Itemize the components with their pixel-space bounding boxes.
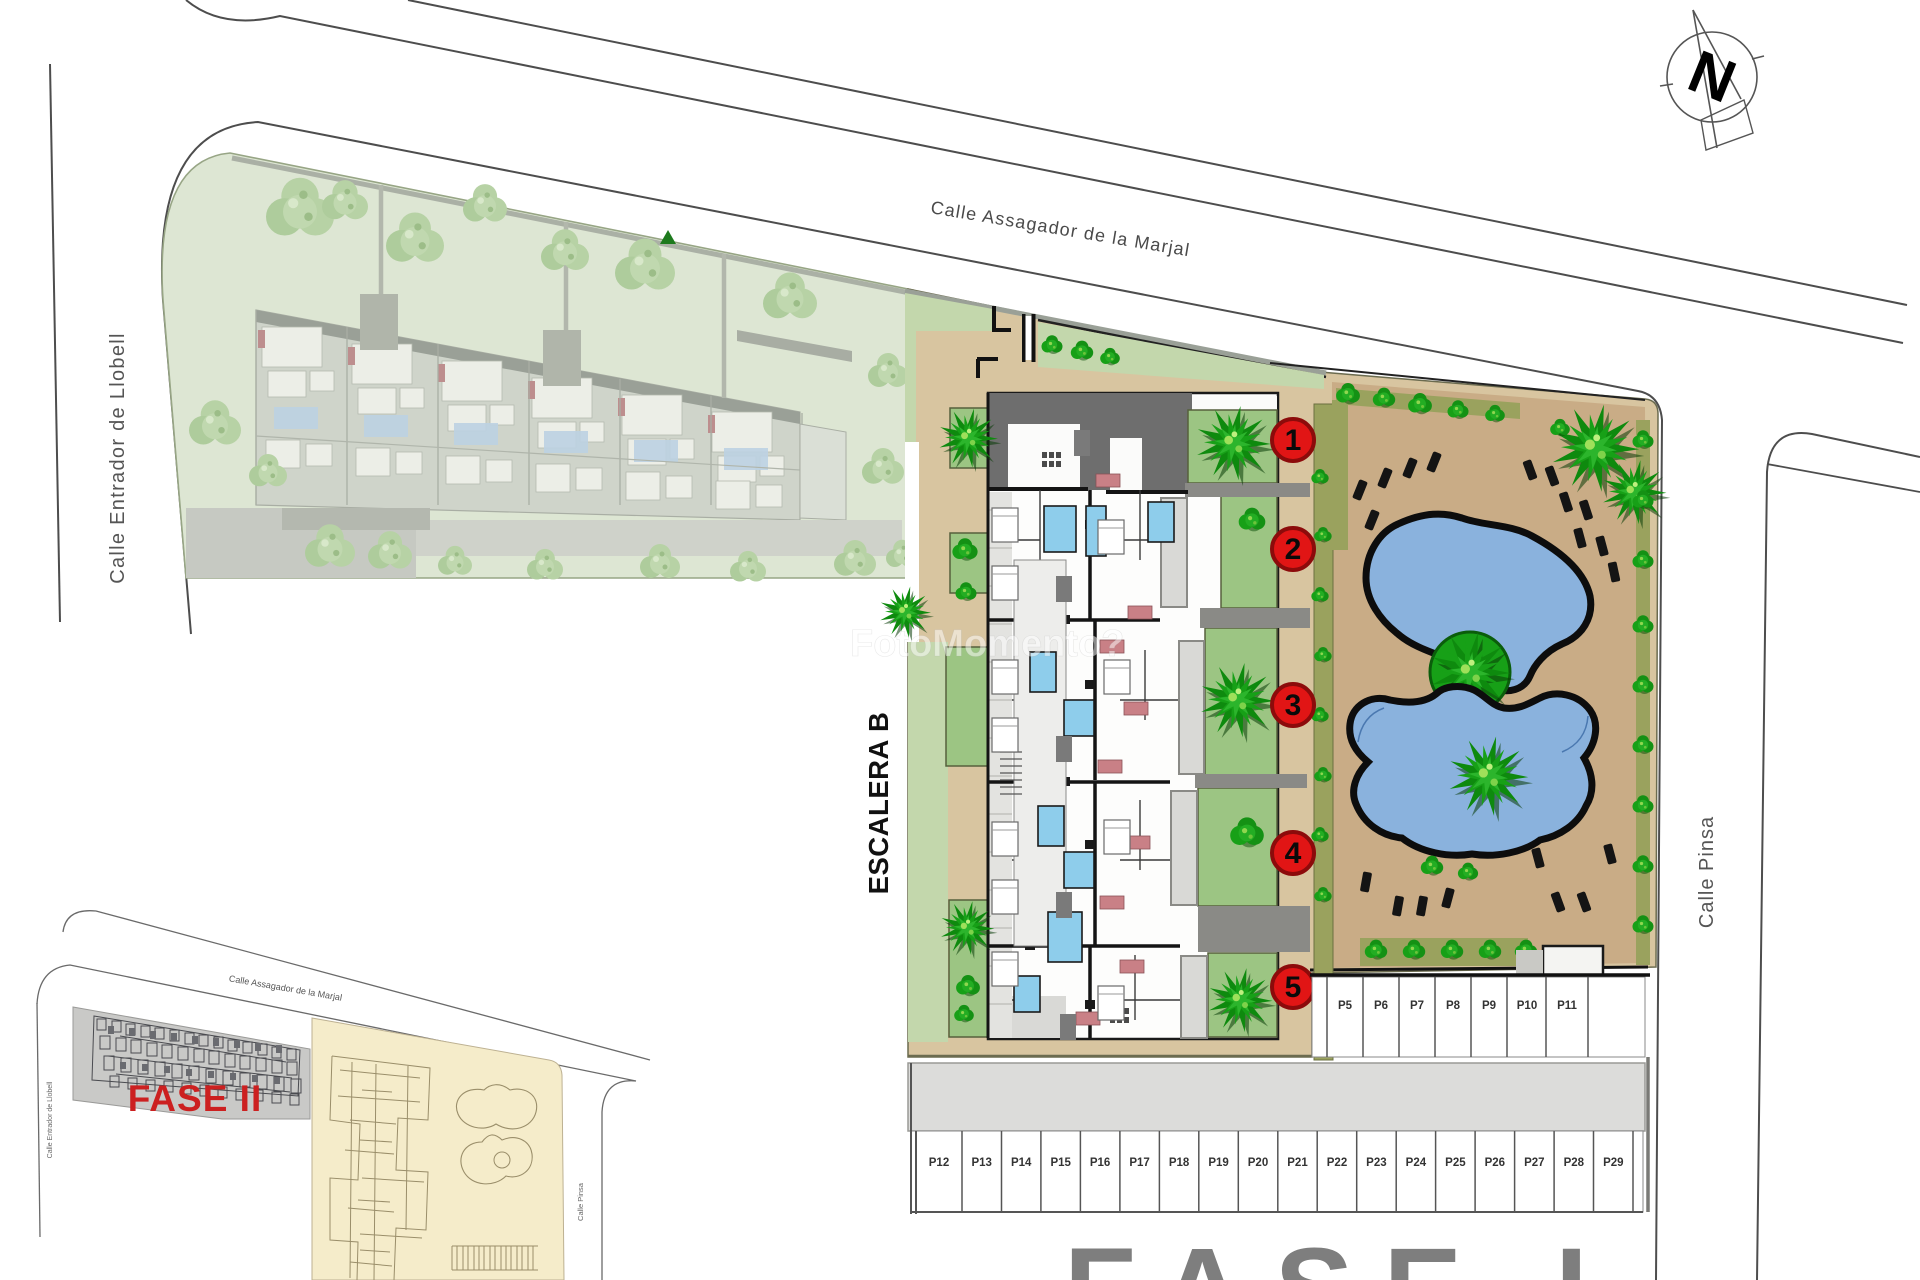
- svg-text:P29: P29: [1603, 1157, 1623, 1169]
- svg-text:P21: P21: [1287, 1157, 1308, 1169]
- svg-text:FotoMomento?: FotoMomento?: [850, 623, 1124, 665]
- svg-text:P12: P12: [929, 1157, 949, 1169]
- svg-text:P8: P8: [1446, 1000, 1461, 1012]
- svg-text:FASE I: FASE I: [1064, 1224, 1618, 1280]
- svg-text:P25: P25: [1445, 1157, 1466, 1169]
- svg-text:P15: P15: [1050, 1157, 1071, 1169]
- svg-text:Calle Entrador de Llobell: Calle Entrador de Llobell: [107, 332, 129, 584]
- svg-text:P5: P5: [1338, 1000, 1353, 1012]
- svg-text:P23: P23: [1366, 1157, 1386, 1169]
- svg-text:P19: P19: [1208, 1157, 1228, 1169]
- svg-text:P11: P11: [1557, 1000, 1577, 1012]
- svg-text:FASE II: FASE II: [128, 1078, 262, 1119]
- svg-text:P26: P26: [1485, 1157, 1505, 1169]
- svg-text:5: 5: [1285, 971, 1302, 1004]
- svg-text:P16: P16: [1090, 1157, 1110, 1169]
- svg-text:P7: P7: [1410, 1000, 1424, 1012]
- svg-text:P6: P6: [1374, 1000, 1388, 1012]
- svg-text:P22: P22: [1327, 1157, 1347, 1169]
- svg-text:ESCALERA B: ESCALERA B: [863, 712, 894, 895]
- svg-text:P9: P9: [1482, 1000, 1496, 1012]
- svg-text:P27: P27: [1524, 1157, 1544, 1169]
- svg-text:1: 1: [1285, 424, 1302, 457]
- svg-text:P13: P13: [971, 1157, 991, 1169]
- svg-text:Calle Entrador de Llobell: Calle Entrador de Llobell: [47, 1081, 54, 1158]
- svg-text:P10: P10: [1517, 1000, 1537, 1012]
- svg-text:P20: P20: [1248, 1157, 1268, 1169]
- svg-text:P14: P14: [1011, 1157, 1032, 1169]
- svg-text:P24: P24: [1406, 1157, 1427, 1169]
- svg-text:2: 2: [1285, 533, 1302, 566]
- svg-text:P28: P28: [1564, 1157, 1585, 1169]
- svg-text:Calle Pinsa: Calle Pinsa: [576, 1182, 585, 1221]
- svg-text:P18: P18: [1169, 1157, 1190, 1169]
- svg-text:Calle Pinsa: Calle Pinsa: [1696, 816, 1718, 928]
- svg-text:3: 3: [1285, 689, 1302, 722]
- svg-text:P17: P17: [1129, 1157, 1149, 1169]
- svg-text:4: 4: [1285, 837, 1302, 870]
